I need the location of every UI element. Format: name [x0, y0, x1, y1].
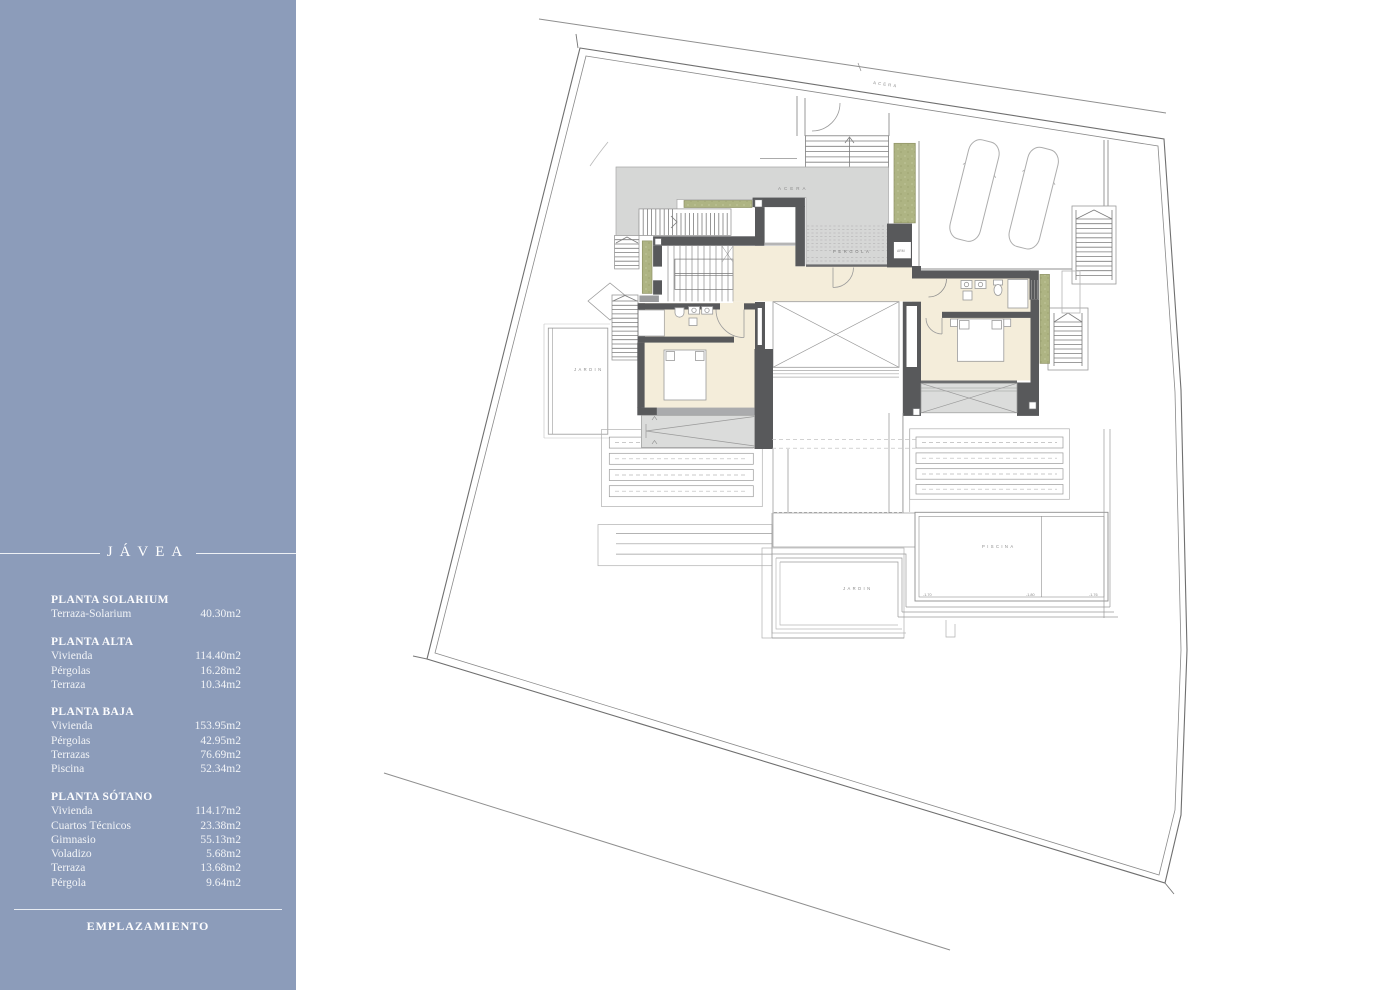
svg-text:-1.76: -1.76	[1089, 593, 1098, 597]
svg-text:PISCINA: PISCINA	[982, 544, 1016, 549]
svg-text:JARDIN: JARDIN	[574, 367, 604, 372]
svg-text:JARDIN: JARDIN	[843, 586, 873, 591]
svg-text:PERGOLA: PERGOLA	[833, 249, 871, 254]
svg-text:-1.70: -1.70	[923, 593, 932, 597]
svg-text:ACERA: ACERA	[873, 80, 899, 88]
svg-text:-1.80: -1.80	[1026, 593, 1035, 597]
svg-text:ARM: ARM	[897, 249, 905, 253]
svg-text:ACERA: ACERA	[778, 186, 809, 191]
